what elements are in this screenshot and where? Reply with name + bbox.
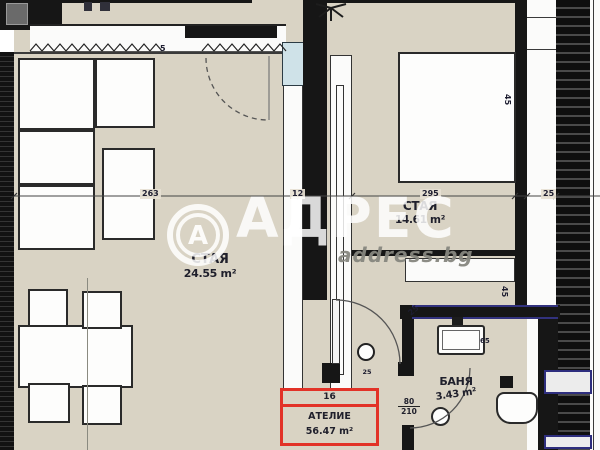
sofa-corner-section (95, 58, 155, 128)
chair-1 (28, 289, 68, 327)
bedroom-label: СТАЯ 14.61 m² (380, 200, 460, 226)
bathtub-inner-line (442, 330, 480, 350)
right-edge-line (593, 0, 594, 450)
living-room-name: СТАЯ (160, 253, 260, 268)
dim-bedroom-side: 45 (503, 94, 512, 105)
column-symbol (357, 343, 375, 361)
living-room-label: СТАЯ 24.55 m² (160, 253, 260, 281)
chair-3 (28, 383, 70, 423)
unit-info: АТЕЛИЕ 56.47 m² (283, 407, 376, 439)
chair-2 (82, 291, 122, 329)
bath-wall-detail-line-1 (412, 305, 558, 307)
corridor-wall (352, 250, 515, 256)
sofa-section-1 (18, 58, 95, 130)
bed (398, 52, 516, 183)
section-line (87, 278, 88, 450)
sink (431, 407, 450, 426)
unit-highlight-box: 16 АТЕЛИЕ 56.47 m² (280, 388, 379, 446)
hall-door-leaf (332, 299, 340, 364)
hall-door-jamb (322, 363, 340, 383)
bath-door-jamb (398, 362, 414, 376)
plan-mark-1 (84, 2, 92, 11)
dim-shaft-width: 25 (541, 189, 556, 199)
bath-wall-detail-line-2 (412, 317, 558, 319)
elevator-car (544, 370, 592, 394)
bedroom-name: СТАЯ (380, 200, 460, 214)
bath-door-height: 210 (398, 407, 420, 416)
bath-door-size: 80 210 (398, 397, 420, 416)
bath-door-width: 80 (398, 397, 420, 407)
terrace-beam (185, 26, 277, 38)
center-wall-panel-left (283, 84, 303, 390)
dim-wall-thickness: 12 (290, 189, 305, 199)
bathtub (437, 325, 485, 355)
column-mark-label: 25 (360, 368, 374, 377)
toilet-tank (500, 376, 513, 388)
bedroom-area: 14.61 m² (380, 214, 460, 226)
plan-mark-2 (100, 2, 110, 11)
center-wall (303, 0, 327, 300)
bath-left-wall-lower (402, 425, 414, 450)
unit-number: 16 (283, 391, 376, 407)
core-detail-box (544, 435, 592, 449)
dim-hall-side: 45 (500, 286, 509, 297)
dim-tub-width: 65 (480, 337, 490, 346)
bedroom-right-wall (515, 0, 527, 305)
dining-table (18, 325, 133, 388)
left-exterior-wall (0, 52, 14, 450)
wardrobe (405, 258, 515, 282)
bedroom-top-wall (327, 0, 527, 3)
core-line-1 (527, 17, 556, 18)
dim-top-gap: 5 (160, 44, 166, 53)
unit-area: 56.47 m² (283, 424, 376, 439)
living-room-area: 24.55 m² (160, 268, 260, 281)
unit-type: АТЕЛИЕ (283, 409, 376, 424)
floor-plan: 263 12 295 25 5 45 45 25 65 80 210 25 СТ… (0, 0, 600, 450)
shaft-symbol (6, 3, 28, 25)
bath-left-wall-upper (402, 319, 414, 367)
living-top-wall-line (14, 52, 283, 54)
core-line-2 (527, 49, 556, 50)
chair-4 (82, 385, 122, 425)
toilet (496, 392, 538, 424)
dim-living-width: 263 (140, 189, 161, 199)
balcony-glass-door (282, 42, 304, 86)
sofa-section-3 (18, 185, 95, 250)
dim-bedroom-width: 295 (420, 189, 441, 199)
bath-label: БАНЯ 3.43 m² (420, 376, 492, 400)
sofa-section-2 (18, 130, 95, 185)
